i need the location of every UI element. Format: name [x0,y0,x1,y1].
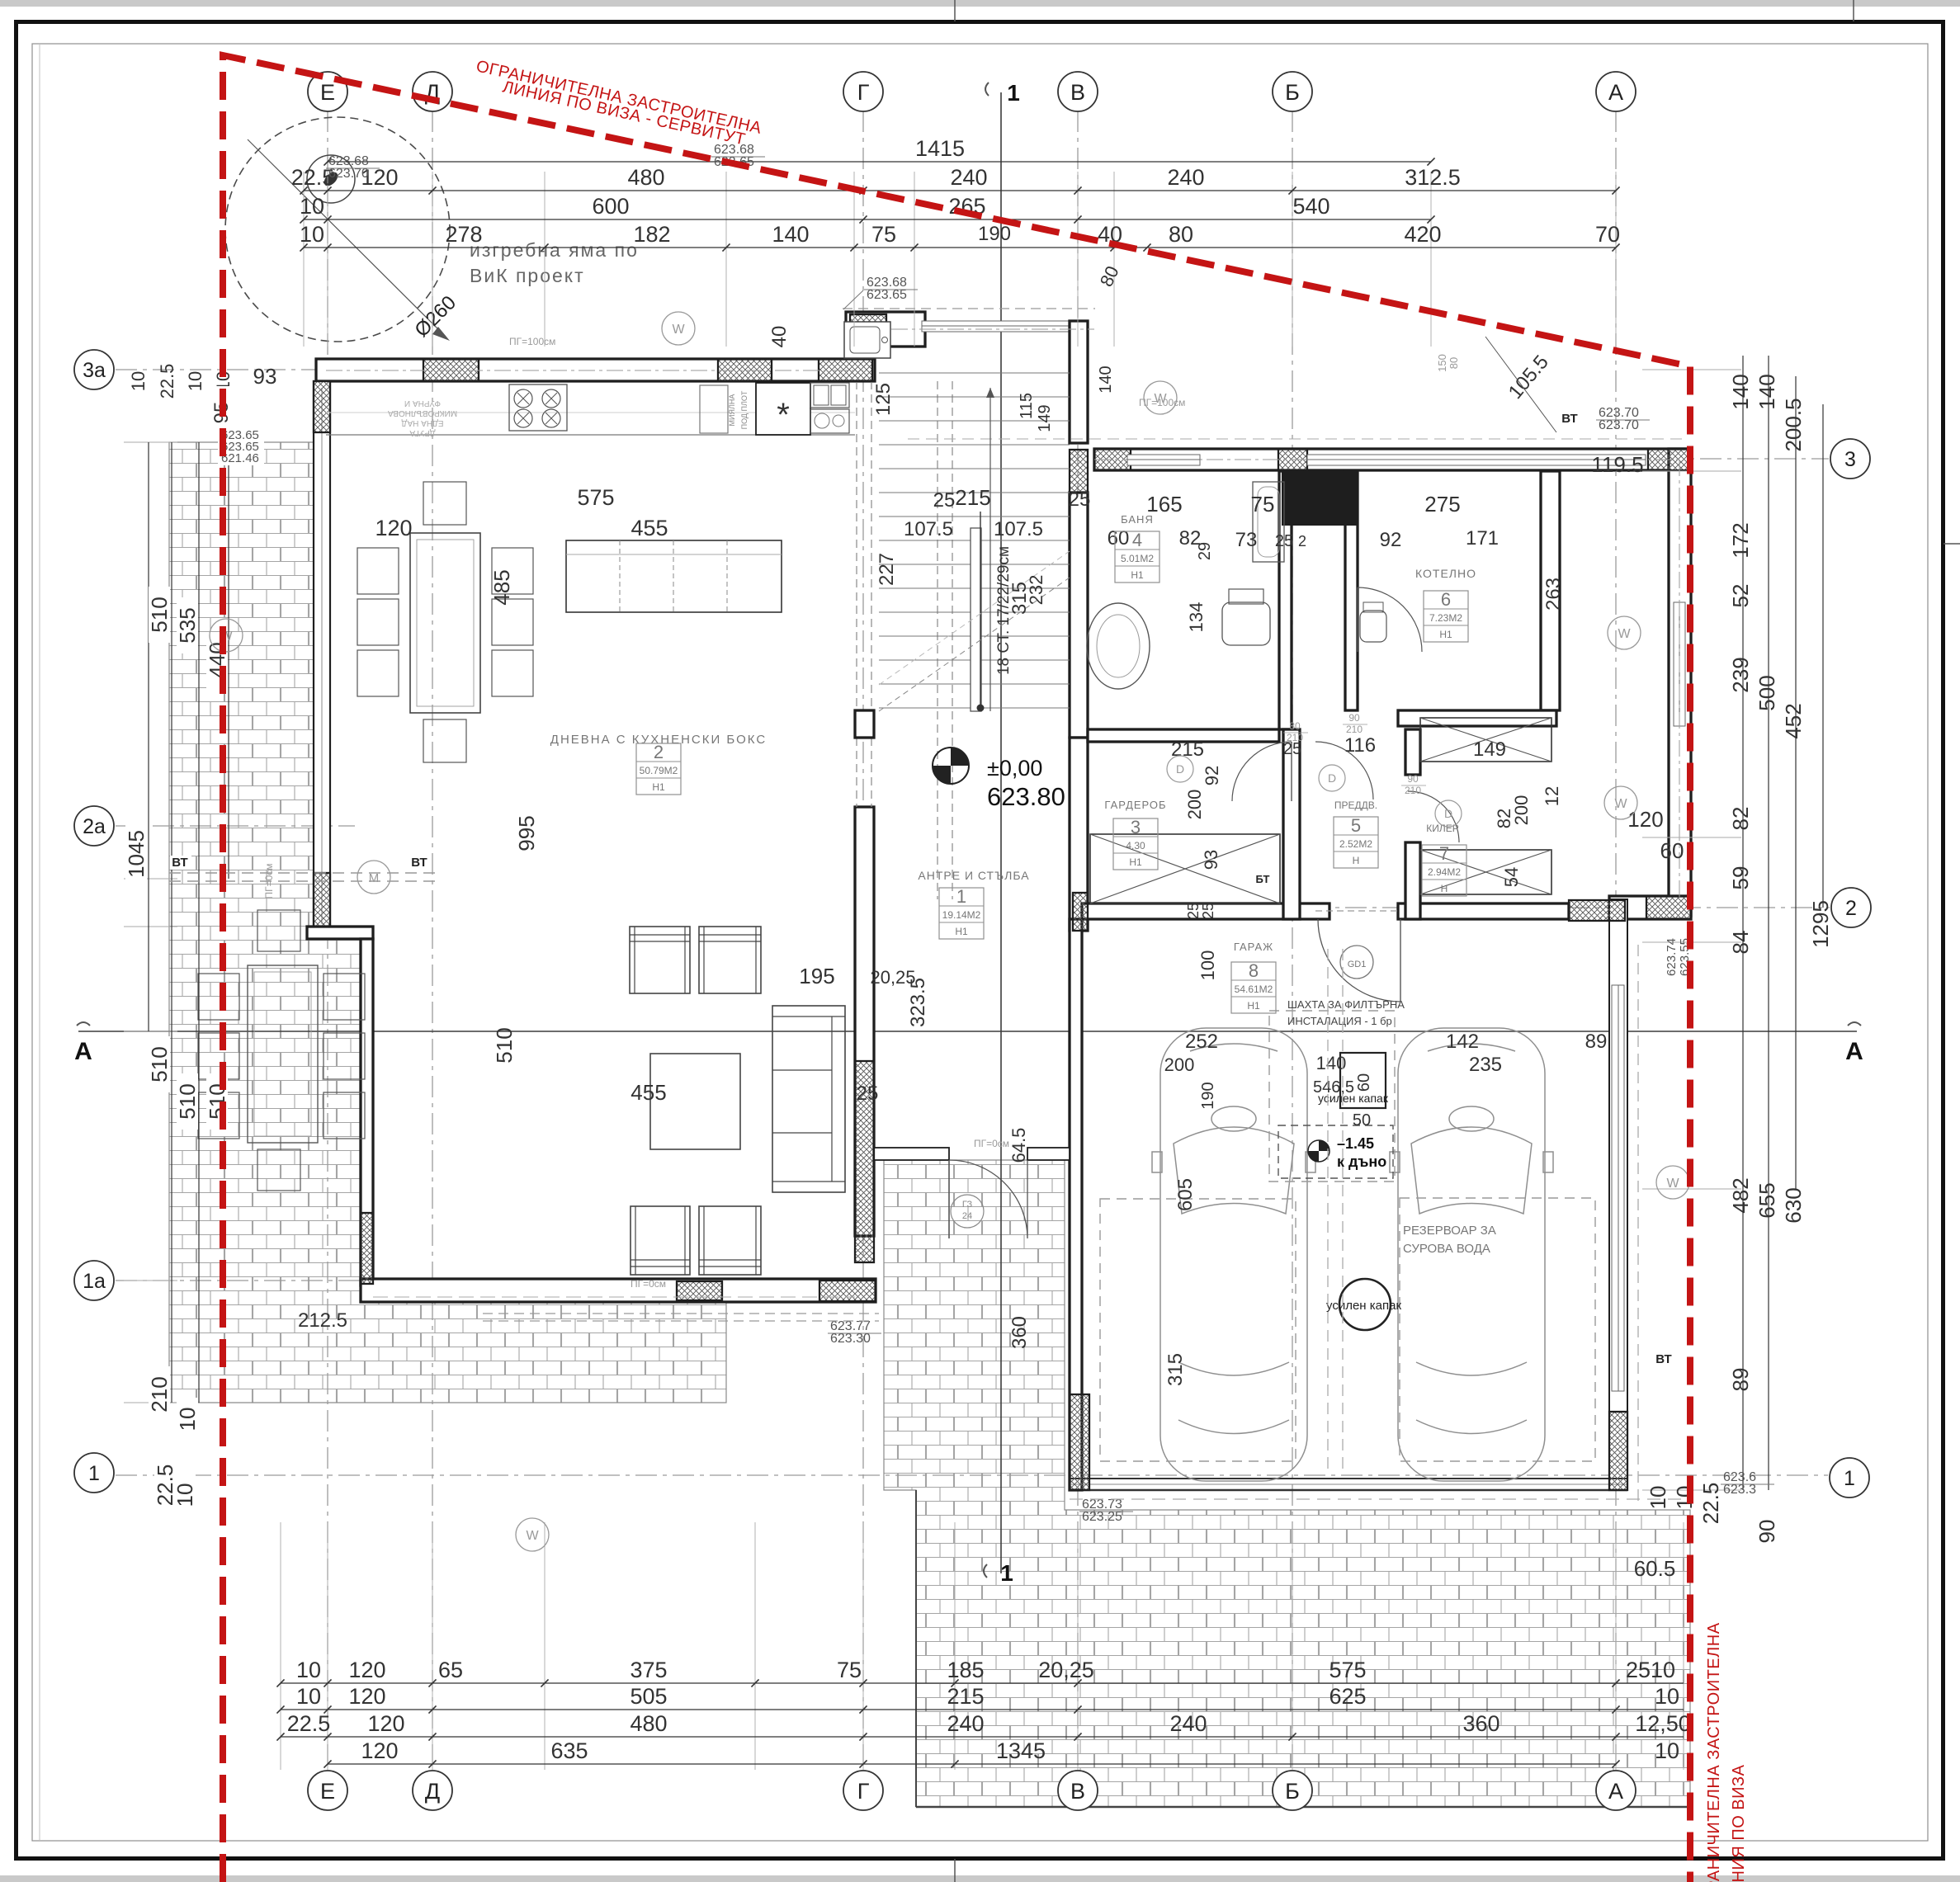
svg-text:GD1: GD1 [1348,960,1367,969]
svg-text:630: 630 [1781,1187,1806,1223]
svg-text:546,5: 546,5 [1313,1078,1354,1097]
svg-text:375: 375 [630,1658,667,1682]
svg-text:195: 195 [799,964,834,988]
svg-text:А: А [1608,80,1623,105]
svg-text:119.5: 119.5 [1591,452,1643,477]
svg-text:120: 120 [1627,807,1663,832]
svg-text:315: 315 [1164,1353,1187,1386]
svg-text:575: 575 [577,485,614,510]
svg-text:2: 2 [1298,533,1306,550]
svg-text:172: 172 [1728,522,1753,558]
svg-text:МИКРОВЪЛНОВА: МИКРОВЪЛНОВА [388,408,457,417]
svg-text:623.65: 623.65 [867,288,907,302]
svg-text:452: 452 [1781,703,1806,738]
svg-text:ГЗ: ГЗ [962,1200,973,1210]
svg-text:623.80: 623.80 [987,782,1065,811]
svg-text:89: 89 [1585,1031,1608,1053]
svg-text:ЕДНА НАД: ЕДНА НАД [401,418,443,427]
svg-text:278: 278 [445,222,482,247]
svg-text:75: 75 [837,1658,862,1682]
svg-text:140: 140 [772,222,809,247]
svg-text:5: 5 [1351,815,1361,836]
svg-text:240: 240 [1169,1711,1207,1736]
svg-text:2510: 2510 [1626,1658,1675,1682]
svg-text:29: 29 [1196,542,1214,560]
svg-text:3: 3 [1131,817,1141,837]
svg-text:КОТЕЛНО: КОТЕЛНО [1415,567,1476,580]
svg-text:275: 275 [1424,492,1460,516]
svg-text:75: 75 [1251,492,1275,516]
svg-text:235: 235 [1469,1054,1502,1076]
svg-text:120: 120 [348,1658,385,1682]
svg-text:ВТ: ВТ [1655,1352,1671,1366]
svg-text:420: 420 [1404,222,1441,247]
svg-text:25: 25 [857,1083,879,1105]
svg-text:7: 7 [1439,843,1449,864]
svg-text:РЕЗЕРВОАР ЗА: РЕЗЕРВОАР ЗА [1403,1224,1496,1238]
svg-text:149: 149 [1036,404,1054,432]
svg-text:92: 92 [1380,529,1402,551]
svg-text:12: 12 [1542,786,1562,806]
svg-text:усилен капак: усилен капак [1326,1299,1401,1313]
svg-text:82: 82 [1728,807,1753,831]
svg-text:93: 93 [253,364,277,389]
svg-text:240: 240 [950,165,987,190]
svg-text:182: 182 [633,222,670,247]
svg-text:212.5: 212.5 [298,1309,347,1332]
svg-text:120: 120 [361,1738,398,1763]
svg-text:210: 210 [1346,724,1363,735]
svg-text:ЛИНИЯ ПО ВИЗА: ЛИНИЯ ПО ВИЗА [1730,1764,1748,1882]
svg-text:116: 116 [1344,734,1376,757]
svg-text:240: 240 [1167,165,1204,190]
svg-text:510: 510 [147,1046,172,1082]
svg-text:Г: Г [857,1779,870,1804]
svg-text:10: 10 [172,1483,197,1507]
svg-text:3а: 3а [83,359,106,382]
svg-text:100: 100 [1197,950,1218,981]
svg-text:93: 93 [1201,850,1221,870]
svg-text:140: 140 [1728,374,1753,409]
svg-text:В: В [1070,80,1085,105]
svg-text:ВТ: ВТ [1561,412,1577,426]
svg-text:360: 360 [1008,1316,1031,1349]
svg-text:150: 150 [1436,354,1448,372]
svg-text:Н1: Н1 [652,781,665,793]
svg-text:1: 1 [88,1462,100,1485]
svg-text:Е: Е [320,80,335,105]
svg-text:190: 190 [1199,1082,1217,1109]
svg-text:60: 60 [1355,1073,1373,1092]
svg-text:24: 24 [962,1211,972,1221]
svg-text:215: 215 [955,485,990,510]
svg-text:25: 25 [1069,488,1091,511]
svg-text:1: 1 [956,886,966,907]
svg-text:185: 185 [947,1658,984,1682]
svg-text:изгребна яма по: изгребна яма по [470,239,639,261]
svg-text:1045: 1045 [124,830,149,878]
svg-text:240: 240 [947,1711,984,1736]
svg-text:5.01М2: 5.01М2 [1121,553,1154,564]
svg-text:210: 210 [1287,732,1303,743]
svg-text:10: 10 [1655,1684,1679,1709]
svg-text:12,50: 12,50 [1635,1711,1691,1736]
svg-text:125: 125 [872,383,895,416]
svg-text:БТ: БТ [1256,873,1270,885]
svg-text:90: 90 [1755,1520,1779,1544]
svg-text:54.61М2: 54.61М2 [1235,983,1273,995]
svg-text:2: 2 [1845,897,1857,920]
svg-text:142: 142 [1446,1031,1479,1053]
svg-text:575: 575 [1329,1658,1366,1682]
svg-text:540: 540 [1292,194,1329,219]
svg-text:482: 482 [1728,1177,1753,1213]
svg-text:КИЛЕР: КИЛЕР [1426,823,1459,834]
svg-text:ВТ: ВТ [411,856,427,870]
svg-text:480: 480 [630,1711,667,1736]
svg-text:215: 215 [1171,738,1204,761]
svg-text:623.25: 623.25 [1082,1510,1122,1524]
svg-text:60: 60 [1660,838,1684,863]
svg-text:510: 510 [147,597,172,632]
svg-text:Е: Е [320,1779,335,1804]
svg-text:64.5: 64.5 [1008,1128,1029,1163]
svg-text:к дъно: к дъно [1337,1153,1386,1170]
svg-text:623.74: 623.74 [1665,938,1679,976]
svg-text:84: 84 [1728,931,1753,955]
svg-text:50: 50 [1353,1111,1371,1130]
svg-text:4: 4 [1132,530,1142,550]
svg-text:455: 455 [631,1080,666,1105]
svg-text:239: 239 [1728,657,1753,692]
svg-text:25: 25 [1185,903,1202,919]
svg-text:25: 25 [933,489,956,512]
svg-text:1345: 1345 [996,1738,1046,1763]
svg-text:Н: Н [1441,883,1448,894]
svg-text:ПОД ПЛОТ: ПОД ПЛОТ [740,390,749,429]
svg-text:ДРУГА: ДРУГА [409,428,435,437]
svg-text:263: 263 [1542,578,1565,611]
svg-text:227: 227 [876,553,898,586]
svg-text:92: 92 [1202,766,1222,785]
svg-text:60.5: 60.5 [1634,1556,1676,1581]
svg-text:82: 82 [1494,809,1514,828]
svg-text:4.30: 4.30 [1126,840,1145,851]
svg-text:59: 59 [1728,866,1753,890]
svg-text:40: 40 [768,326,791,348]
svg-text:10: 10 [300,194,324,219]
svg-text:1: 1 [1844,1467,1855,1490]
svg-text:120: 120 [367,1711,404,1736]
svg-text:Г: Г [857,80,870,105]
svg-text:±0,00: ±0,00 [987,756,1042,781]
svg-text:171: 171 [1466,527,1499,550]
svg-text:22.5: 22.5 [1698,1483,1723,1525]
svg-text:W: W [1666,1177,1679,1191]
svg-text:115: 115 [1018,393,1036,419]
svg-text:ОГРАНИЧИТЕЛНА ЗАСТРОИТЕЛНА: ОГРАНИЧИТЕЛНА ЗАСТРОИТЕЛНА [1705,1622,1723,1882]
svg-text:995: 995 [514,815,539,851]
svg-text:70: 70 [1595,222,1620,247]
svg-text:1: 1 [1007,80,1020,106]
svg-text:480: 480 [627,165,664,190]
svg-text:Н1: Н1 [1131,569,1144,581]
svg-text:655: 655 [1755,1182,1779,1218]
svg-text:W: W [1614,797,1627,811]
svg-text:D: D [1328,771,1336,785]
svg-text:10: 10 [128,371,149,391]
svg-text:ИНСТАЛАЦИЯ - 1 бр: ИНСТАЛАЦИЯ - 1 бр [1287,1015,1392,1027]
svg-text:СУРОВА ВОДА: СУРОВА ВОДА [1403,1242,1490,1256]
svg-text:54: 54 [1501,867,1522,887]
svg-text:20,25: 20,25 [1038,1658,1094,1682]
svg-text:621.46: 621.46 [221,451,259,465]
svg-text:D: D [1444,807,1452,820]
svg-text:215: 215 [947,1684,984,1709]
svg-text:1415: 1415 [915,136,965,161]
svg-text:22.5: 22.5 [287,1711,331,1736]
svg-text:ВиК проект: ВиК проект [470,265,585,286]
svg-text:ФУРНА И: ФУРНА И [404,399,441,408]
svg-text:2.52М2: 2.52М2 [1339,838,1372,850]
svg-text:Д: Д [425,1779,440,1804]
svg-text:140: 140 [1316,1053,1347,1073]
svg-text:140: 140 [1755,374,1779,409]
svg-text:510: 510 [175,1083,200,1119]
svg-text:90: 90 [1407,773,1419,785]
svg-text:623.70: 623.70 [1599,418,1639,432]
svg-text:360: 360 [1462,1711,1500,1736]
svg-text:Б: Б [1285,1779,1300,1804]
svg-text:510: 510 [492,1027,517,1063]
svg-text:1295: 1295 [1808,900,1833,948]
svg-text:535: 535 [175,607,200,643]
svg-text:Н: Н [1353,855,1360,866]
svg-text:ПРЕДДВ.: ПРЕДДВ. [1334,799,1377,811]
svg-text:80: 80 [1448,357,1460,369]
svg-text:65: 65 [438,1658,463,1682]
svg-text:W: W [672,323,685,337]
svg-text:232: 232 [1026,575,1046,606]
svg-text:ПГ=100см: ПГ=100см [509,336,555,347]
svg-text:190: 190 [978,223,1011,245]
svg-text:323.5: 323.5 [907,978,929,1027]
svg-text:505: 505 [630,1684,667,1709]
svg-text:А: А [74,1038,92,1065]
svg-text:W: W [1618,627,1631,641]
svg-text:312.5: 312.5 [1405,165,1461,190]
svg-text:ПГ=0см: ПГ=0см [631,1278,666,1290]
svg-text:Н1: Н1 [1247,1000,1260,1012]
svg-text:А: А [1845,1038,1863,1065]
svg-text:10: 10 [296,1658,321,1682]
svg-text:485: 485 [489,569,514,605]
svg-text:МИЯЛНА: МИЯЛНА [728,394,736,427]
svg-text:10: 10 [296,1684,321,1709]
svg-text:А: А [1608,1779,1623,1804]
svg-text:140: 140 [1097,366,1115,393]
svg-text:Н1: Н1 [1439,629,1452,640]
svg-text:200: 200 [1164,1054,1195,1075]
svg-text:2а: 2а [83,815,106,838]
svg-text:600: 600 [592,194,629,219]
svg-text:*: * [777,397,790,433]
svg-text:10: 10 [1655,1738,1679,1763]
svg-text:2: 2 [654,742,664,762]
svg-text:89: 89 [1728,1368,1753,1392]
svg-text:ПГ=0см: ПГ=0см [974,1138,1009,1149]
svg-text:75: 75 [871,222,896,247]
svg-text:455: 455 [631,516,668,540]
svg-text:90: 90 [1348,712,1360,724]
svg-text:2.94М2: 2.94М2 [1428,866,1461,878]
svg-text:22.5: 22.5 [157,364,177,399]
svg-text:120: 120 [375,516,412,540]
svg-text:120: 120 [348,1684,385,1709]
svg-text:10: 10 [185,371,205,391]
svg-text:1: 1 [1000,1560,1013,1586]
svg-text:73: 73 [1235,529,1258,551]
svg-text:ГАРАЖ: ГАРАЖ [1234,941,1273,953]
svg-text:625: 625 [1329,1684,1366,1709]
svg-text:200: 200 [1184,790,1205,820]
svg-text:25: 25 [1200,903,1216,919]
svg-text:623.70: 623.70 [328,167,369,181]
svg-text:623.30: 623.30 [830,1332,871,1346]
svg-text:3: 3 [1844,448,1856,471]
svg-text:БАНЯ: БАНЯ [1121,513,1154,526]
svg-text:W: W [1154,392,1167,406]
svg-text:19.14М2: 19.14М2 [942,909,981,921]
svg-text:52: 52 [1728,584,1753,608]
svg-text:D: D [1176,762,1184,776]
svg-text:635: 635 [550,1738,588,1763]
svg-text:10: 10 [175,1408,200,1432]
svg-text:80: 80 [1289,720,1301,732]
svg-text:210: 210 [1405,785,1421,796]
svg-text:200.5: 200.5 [1781,398,1806,451]
svg-text:623.3: 623.3 [1723,1483,1756,1497]
svg-text:1а: 1а [83,1270,106,1293]
svg-text:ВТ: ВТ [172,856,187,870]
svg-text:8: 8 [1249,960,1259,981]
svg-text:10: 10 [1646,1486,1670,1510]
svg-text:ГАРДЕРОБ: ГАРДЕРОБ [1104,799,1166,811]
svg-text:25: 25 [1275,532,1293,550]
svg-text:В: В [1070,1779,1085,1804]
svg-text:210: 210 [147,1376,172,1412]
svg-text:107.5: 107.5 [994,518,1043,540]
svg-text:Н1: Н1 [1129,856,1142,868]
svg-text:Б: Б [1285,80,1300,105]
svg-text:6: 6 [1441,589,1451,610]
svg-text:80: 80 [1169,222,1193,247]
svg-text:134: 134 [1186,602,1207,633]
svg-text:АНТРЕ И СТЪЛБА: АНТРЕ И СТЪЛБА [918,869,1029,882]
svg-text:500: 500 [1755,675,1779,710]
svg-text:10: 10 [300,222,324,247]
svg-text:107.5: 107.5 [904,518,953,540]
svg-text:149: 149 [1473,738,1506,761]
svg-text:Н1: Н1 [955,926,968,937]
svg-text:252: 252 [1185,1031,1218,1053]
svg-text:60: 60 [1108,527,1130,550]
svg-text:7.23М2: 7.23М2 [1429,612,1462,624]
svg-text:50.79М2: 50.79М2 [640,765,678,776]
svg-text:W: W [526,1529,539,1543]
svg-text:605: 605 [1174,1178,1197,1211]
